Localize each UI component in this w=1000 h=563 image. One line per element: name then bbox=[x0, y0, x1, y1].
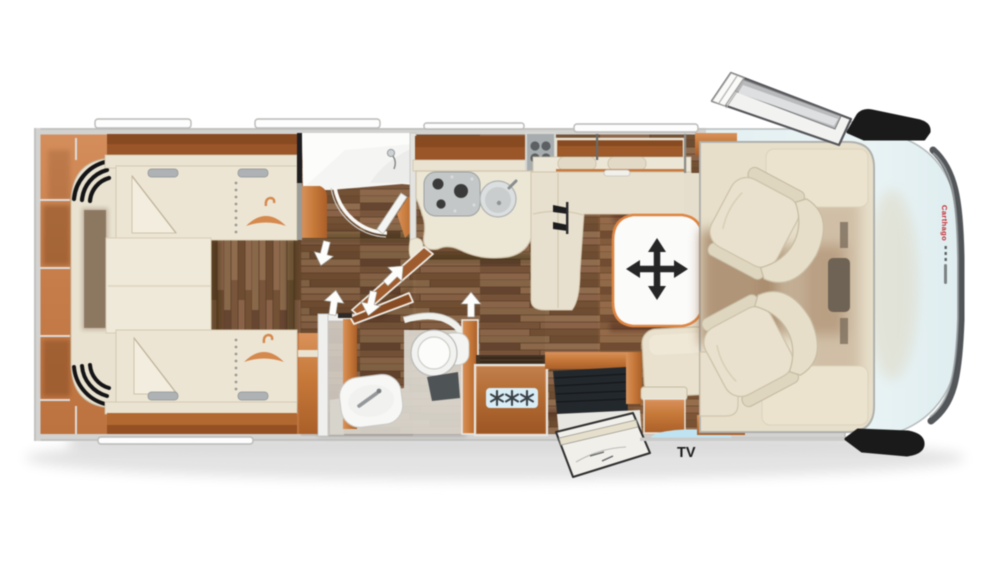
svg-text:Carthago: Carthago bbox=[940, 205, 949, 241]
svg-text:TV: TV bbox=[677, 445, 696, 461]
